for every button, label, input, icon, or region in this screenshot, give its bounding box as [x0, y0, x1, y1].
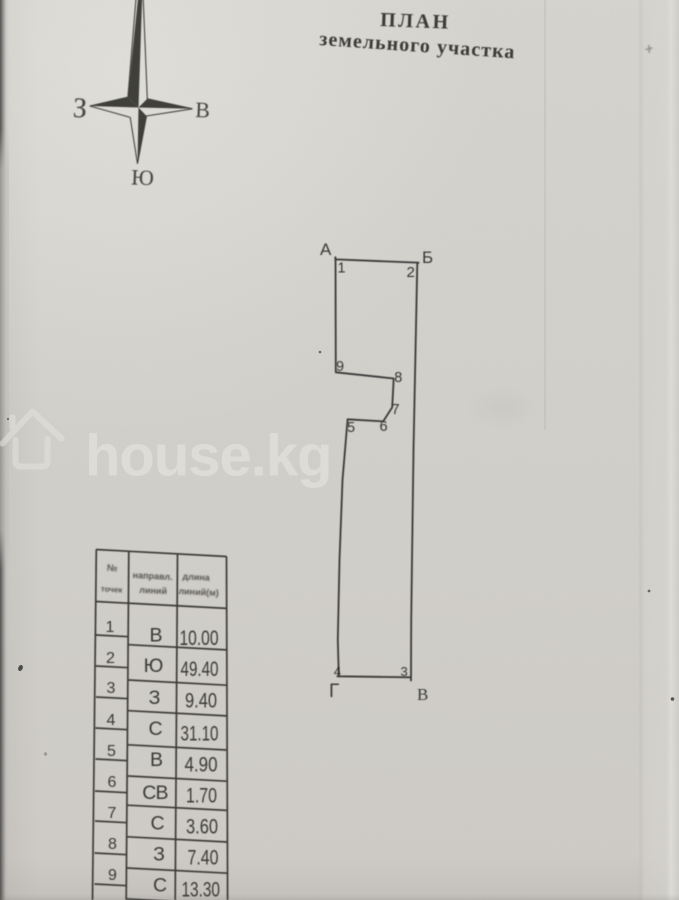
svg-text:4: 4: [334, 664, 341, 679]
svg-text:длина: длина: [182, 571, 211, 582]
svg-text:4.90: 4.90: [185, 754, 218, 777]
svg-text:7.40: 7.40: [188, 847, 219, 870]
svg-text:С: С: [153, 875, 167, 897]
svg-text:В: В: [195, 97, 211, 123]
svg-text:13.30: 13.30: [182, 879, 221, 900]
svg-text:точек: точек: [101, 584, 124, 594]
svg-text:2: 2: [407, 264, 415, 281]
svg-text:В: В: [417, 685, 428, 704]
svg-text:7: 7: [108, 805, 117, 822]
svg-text:1.70: 1.70: [186, 785, 217, 808]
svg-text:9: 9: [336, 359, 344, 375]
svg-text:9.40: 9.40: [185, 690, 217, 713]
svg-text:8: 8: [108, 836, 117, 853]
svg-text:10.00: 10.00: [180, 627, 219, 650]
svg-text:В: В: [149, 625, 162, 647]
svg-text:С: С: [148, 718, 162, 740]
svg-text:ПЛАН: ПЛАН: [380, 9, 451, 34]
svg-text:З: З: [149, 687, 161, 709]
svg-text:3.60: 3.60: [186, 816, 218, 839]
svg-text:7: 7: [392, 402, 400, 418]
svg-text:Б: Б: [422, 248, 433, 267]
svg-text:9: 9: [108, 867, 117, 884]
svg-text:СВ: СВ: [142, 782, 168, 804]
svg-text:В: В: [150, 749, 163, 771]
svg-text:№: №: [107, 563, 119, 575]
svg-text:1: 1: [338, 261, 346, 277]
svg-text:5: 5: [347, 420, 355, 436]
svg-text:6: 6: [380, 419, 388, 435]
svg-text:Ю: Ю: [144, 655, 164, 677]
svg-text:3: 3: [107, 680, 116, 697]
svg-text:А: А: [320, 240, 332, 259]
svg-text:Г: Г: [329, 681, 339, 702]
svg-text:Ю: Ю: [131, 165, 155, 191]
svg-text:6: 6: [108, 774, 117, 791]
svg-text:З: З: [153, 844, 165, 866]
svg-text:3: 3: [401, 664, 408, 679]
svg-text:З: З: [72, 93, 87, 125]
svg-text:линий: линий: [139, 585, 167, 596]
svg-text:4: 4: [107, 712, 116, 729]
svg-text:линий(м): линий(м): [178, 586, 219, 598]
svg-text:5: 5: [107, 743, 116, 760]
svg-text:1: 1: [106, 619, 115, 636]
svg-text:house.kg: house.kg: [85, 424, 332, 489]
svg-text:49.40: 49.40: [181, 658, 219, 681]
svg-text:2: 2: [106, 650, 115, 667]
svg-text:направл.: направл.: [132, 570, 172, 582]
svg-text:8: 8: [394, 370, 402, 386]
svg-text:31.10: 31.10: [181, 723, 219, 746]
svg-text:С: С: [150, 813, 164, 835]
